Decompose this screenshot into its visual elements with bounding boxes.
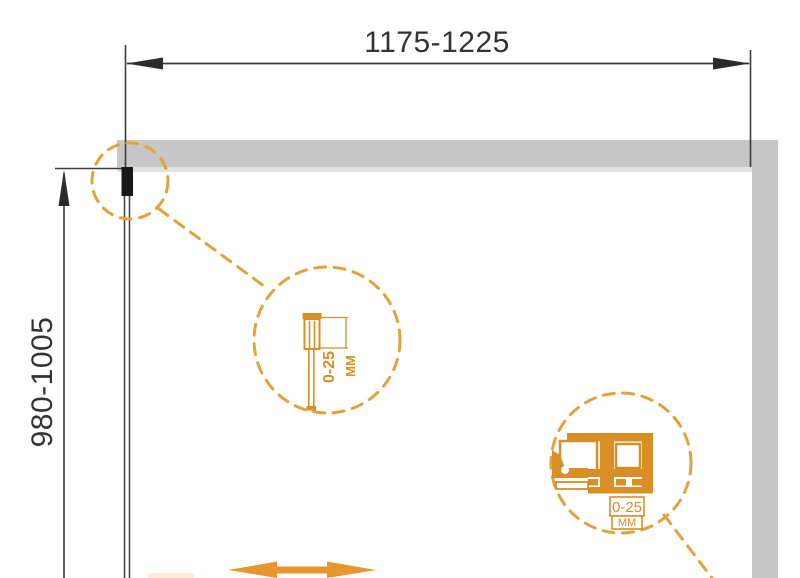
dimension-drawing-canvas: 1175-1225 980-1005 0-25 MM 0-25 MM bbox=[0, 0, 800, 578]
width-dimension-label: 1175-1225 bbox=[337, 26, 537, 60]
leader-line-corner-to-profile bbox=[159, 209, 268, 289]
roller-detail-range-label: 0-25 bbox=[610, 499, 644, 516]
height-dimension-lines bbox=[55, 169, 122, 578]
width-dimension-lines bbox=[126, 45, 751, 168]
wall-profile-detail-range-label: 0-25 bbox=[322, 337, 338, 397]
wall-profile-detail-unit-label: MM bbox=[344, 345, 358, 387]
leader-line-roller-to-bottom bbox=[664, 515, 712, 578]
slide-direction-arrow bbox=[228, 562, 376, 578]
roller-mechanism-drawing bbox=[552, 433, 653, 494]
glass-panel-edge-lines bbox=[125, 196, 130, 578]
drawing-linework bbox=[0, 0, 800, 578]
roller-detail-unit-label: MM bbox=[612, 517, 642, 529]
height-dimension-label: 980-1005 bbox=[27, 282, 59, 482]
wall-profile-black-section bbox=[122, 167, 134, 196]
